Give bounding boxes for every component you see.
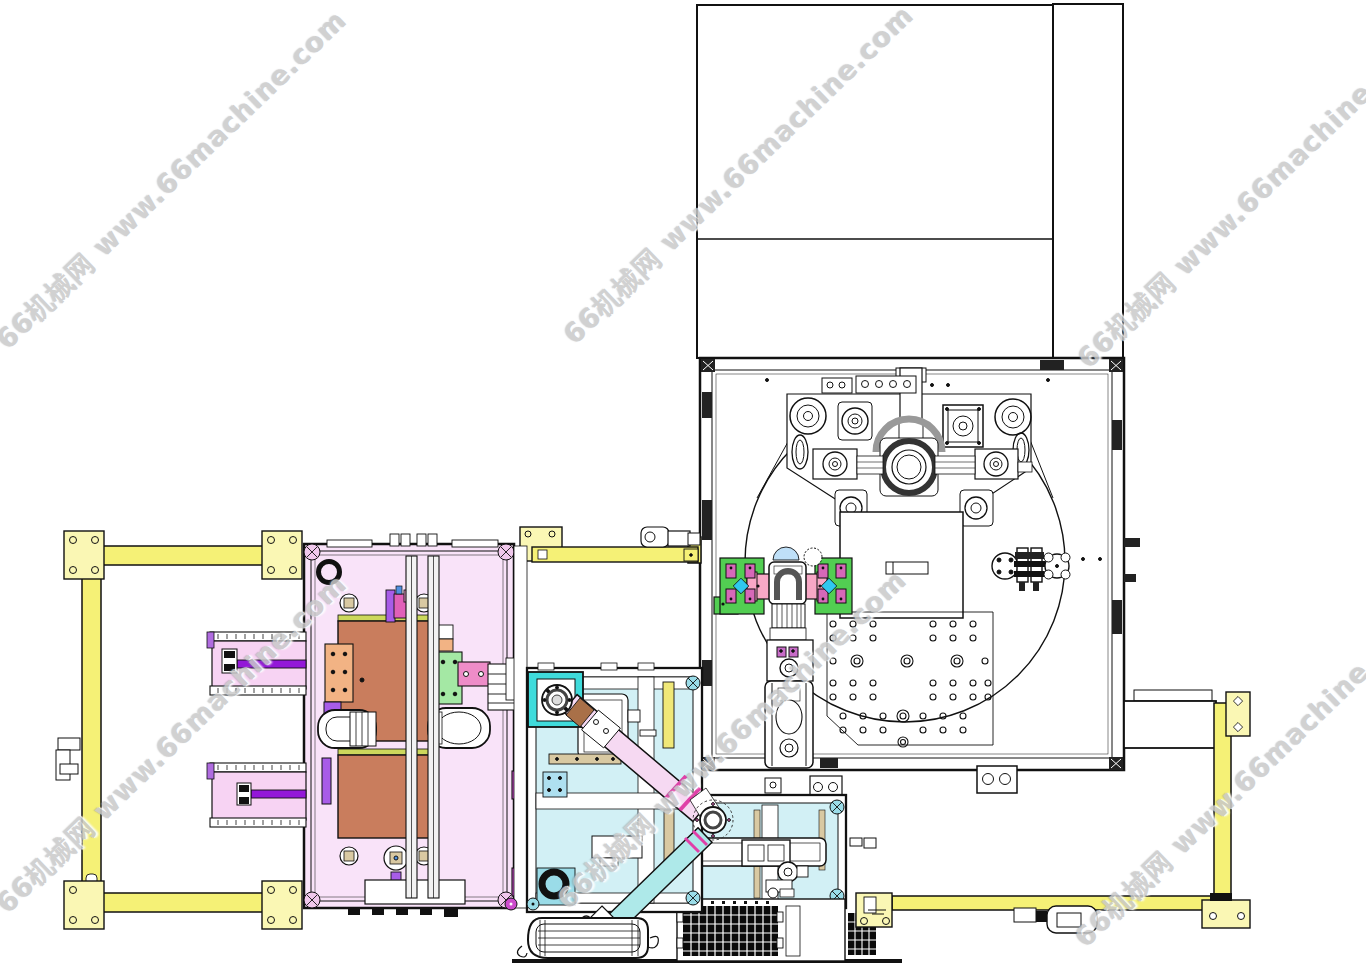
cross-beam-top [520, 527, 700, 562]
door-bracket [56, 738, 80, 780]
drive-motor [1014, 906, 1097, 933]
gripper-left [318, 710, 376, 748]
tray-conveyor-upper [207, 632, 306, 695]
wire-left [517, 946, 527, 957]
electrical-enclosure [697, 4, 1123, 358]
center-pallet-plate [840, 512, 963, 618]
lower-tray [338, 755, 433, 838]
beam-clamp-device [641, 527, 700, 547]
rotary-table-station [688, 358, 1140, 793]
side-stub [850, 838, 862, 846]
bottom-sensor-plate [977, 766, 1017, 793]
machine-line-drawing [0, 0, 1366, 971]
tray-conveyor-lower [207, 763, 306, 827]
end-plate-small [856, 893, 892, 927]
left-loading-machine [304, 534, 527, 917]
shoulder-joint [542, 685, 572, 715]
ball-screw [237, 660, 306, 668]
machine-feet [348, 908, 458, 917]
connector-box [1124, 701, 1216, 748]
ball-screw [251, 790, 306, 798]
machine-gap-strip [514, 546, 527, 908]
wire-right [648, 936, 658, 948]
cad-layout-drawing: 66机械网 www.66machine.com 66机械网 www.66mach… [0, 0, 1366, 971]
feeder-block [517, 918, 658, 958]
safety-frame-left [56, 531, 302, 929]
